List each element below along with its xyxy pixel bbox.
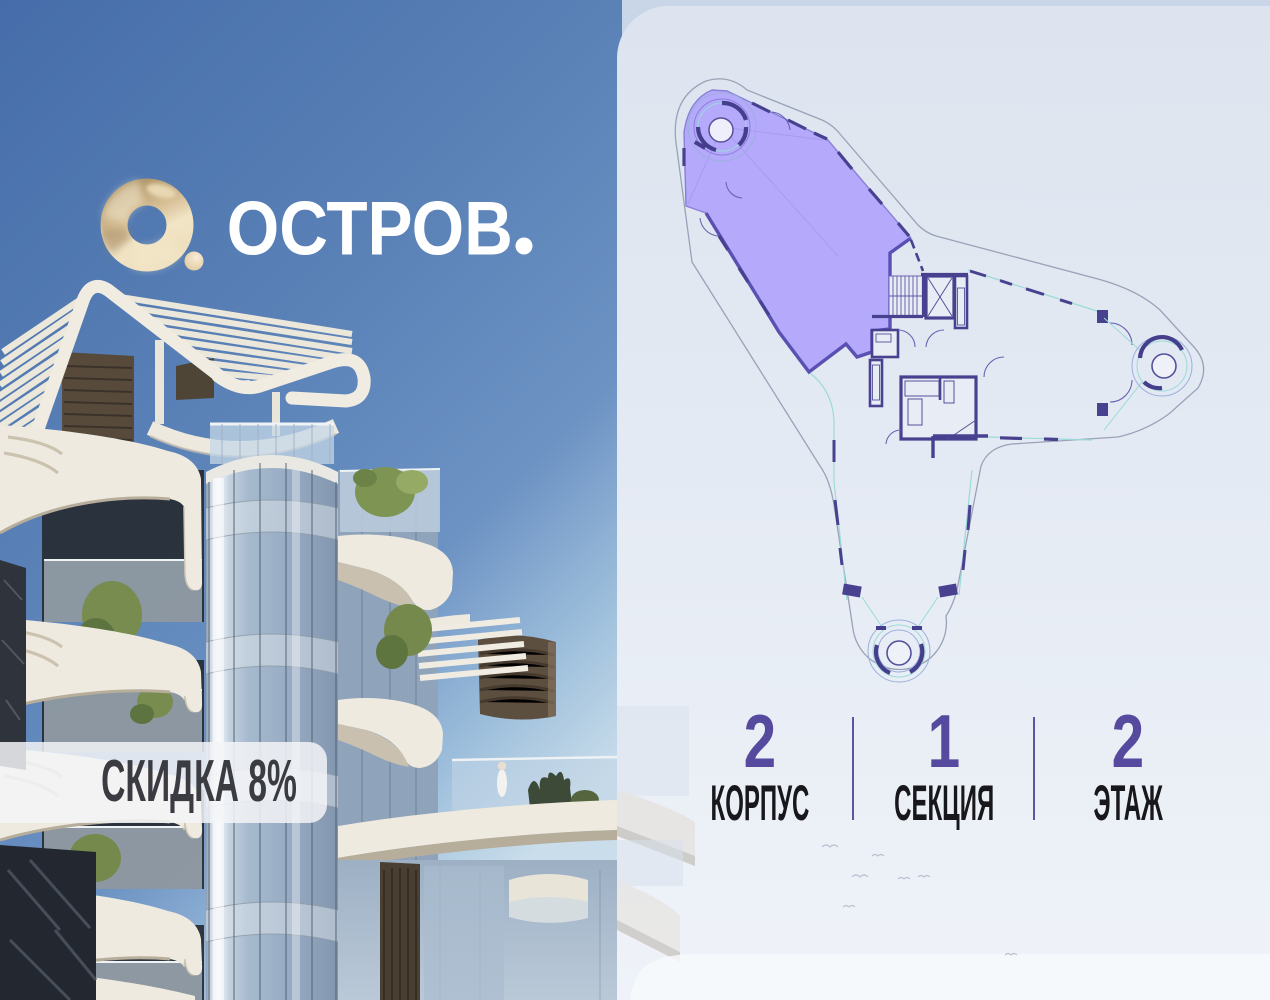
svg-text:ОСТРОВ: ОСТРОВ: [227, 187, 513, 272]
